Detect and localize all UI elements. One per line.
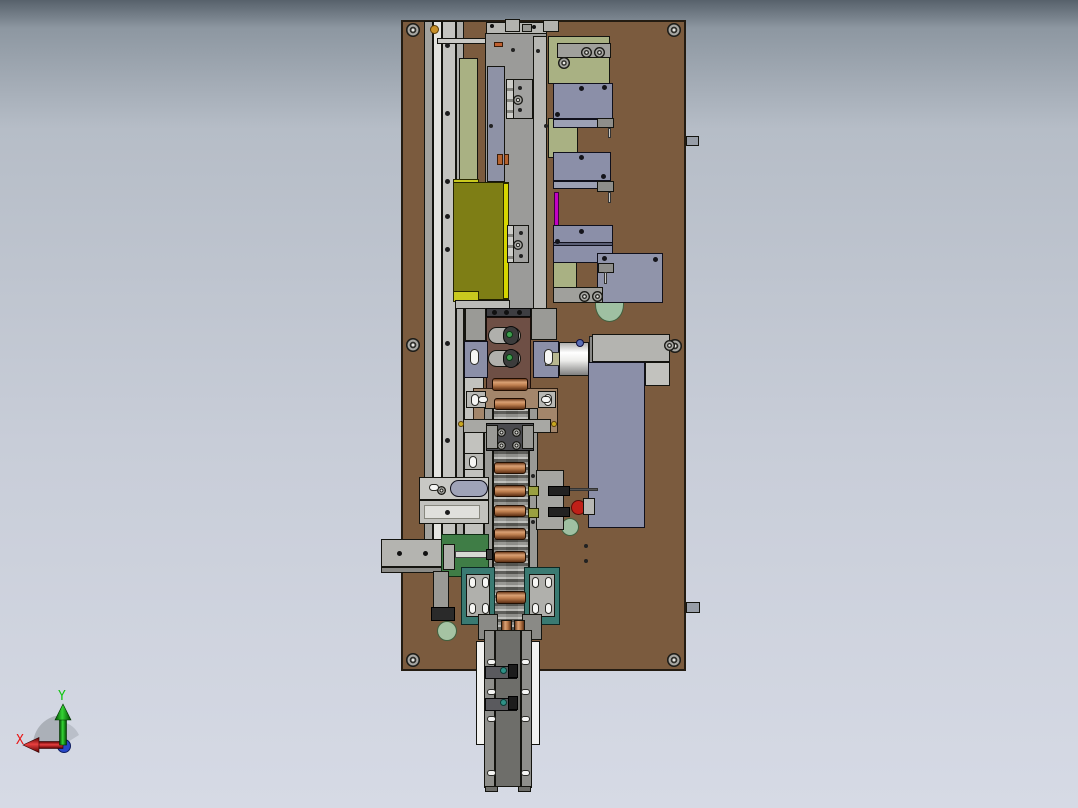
detail-dot [519,231,523,235]
valve-plate[interactable] [536,470,564,530]
mounting-slot [521,659,530,665]
detail-dot [500,667,507,674]
sensor-clamp-2[interactable] [508,696,518,710]
screw [594,47,605,58]
piston-rod[interactable] [455,551,488,558]
cad-viewport[interactable]: Y X [0,0,1078,808]
central-plate-right-strip[interactable] [533,36,547,320]
mounting-slot [532,603,539,614]
knob-cap[interactable] [583,498,595,515]
screw [406,338,420,352]
drive-block[interactable] [588,362,645,528]
detail-dot [579,86,584,91]
top-fitting-1[interactable] [505,19,520,32]
mounting-slot [544,349,553,365]
detail-dot [579,229,584,234]
air-cylinder-cap[interactable] [431,607,455,621]
pale-green-backplate[interactable] [459,58,478,182]
motor-housing[interactable] [592,334,670,362]
linear-rail-white[interactable] [433,21,442,548]
mounting-slot [521,689,530,695]
detail-dot [445,179,450,184]
detail-dot [579,155,584,160]
conveyor-roller[interactable] [494,528,526,540]
sensor-clamp-1[interactable] [508,664,518,678]
screw [512,441,521,450]
actuator-pin-3[interactable] [604,272,607,284]
mounting-slot [521,770,530,776]
detail-dot [584,544,588,548]
detail-dot [602,85,607,90]
screw [558,57,570,69]
track-foot-left[interactable] [485,786,498,792]
screw [667,23,681,37]
screw [667,653,681,667]
detail-dot [518,86,522,90]
mounting-slot [521,716,530,722]
valve-fitting-2[interactable] [528,508,539,518]
reject-arm[interactable] [381,539,444,567]
conveyor-roller[interactable] [496,591,526,604]
screw [581,47,592,58]
detail-dot [445,341,450,346]
magenta-seal[interactable] [554,192,559,226]
detail-dot [445,438,450,443]
h-bar-cylinder[interactable] [450,480,488,497]
plate-tab-right-bottom[interactable] [686,602,700,613]
detail-dot [511,48,515,52]
actuator-pin-2[interactable] [608,192,611,203]
triad-x-label: X [16,733,24,748]
valve-fitting-1[interactable] [528,486,539,496]
detail-dot [532,25,536,29]
detail-dot [492,310,497,315]
detail-dot [445,214,450,219]
detail-dot [489,124,493,128]
screw [592,291,603,302]
coupling-cylinder[interactable] [559,342,589,376]
conveyor-roller[interactable] [494,505,526,517]
conveyor-roller[interactable] [492,378,528,391]
mounting-slot [469,577,476,588]
detail-dot [536,49,540,53]
detail-dot [653,257,658,262]
actuator-foot-1[interactable] [597,118,614,128]
tensioner-wing-right[interactable] [522,425,534,449]
linear-rail-outer[interactable] [424,21,433,544]
mounting-slot [429,484,439,491]
screw [579,291,590,302]
t-fitting-1[interactable] [548,486,570,496]
detail-dot [584,559,588,563]
detail-dot [602,256,607,261]
fixture-wing-right[interactable] [531,308,557,340]
mounting-slot [541,396,551,403]
detail-dot [519,254,523,258]
detail-dot [504,310,509,315]
conveyor-roller[interactable] [494,398,526,410]
detail-dot [518,108,522,112]
detail-dot [555,239,560,244]
orange-strip[interactable] [494,42,503,47]
mounting-slot [470,349,479,365]
actuator-groove-3[interactable] [553,242,613,246]
mounting-slot [545,577,552,588]
mounting-slot [545,603,552,614]
mounting-slot [469,603,476,614]
detail-dot [397,551,402,556]
orange-block-1[interactable] [497,154,503,165]
track-white-left[interactable] [476,641,485,745]
screw [406,23,420,37]
screw [512,428,521,437]
rod-tip[interactable] [486,549,493,560]
screw [406,653,420,667]
screw [497,441,506,450]
h-bar-2-inner[interactable] [424,505,480,519]
detail-dot [544,124,548,128]
conveyor-roller[interactable] [494,485,526,497]
screw [513,240,523,250]
screw [497,428,506,437]
detail-dot [445,510,450,515]
detail-dot [490,24,494,28]
detail-dot [445,111,450,116]
detail-dot [506,331,513,338]
top-fitting-3[interactable] [543,20,559,32]
triad-y-label: Y [58,689,66,704]
mounting-slot [487,659,496,665]
track-foot-right[interactable] [518,786,531,792]
t-fitting-2[interactable] [548,507,570,517]
mounting-slot [487,770,496,776]
conveyor-roller[interactable] [494,462,526,474]
mounting-slot [482,577,489,588]
detail-dot [445,247,450,252]
detail-dot [445,43,450,48]
mounting-slot [487,689,496,695]
actuator-pin-1[interactable] [608,128,611,138]
orange-block-2[interactable] [504,154,509,165]
track-white-right[interactable] [531,641,540,745]
detail-dot [576,339,584,347]
mint-circle[interactable] [437,621,457,641]
mounting-slot [482,603,489,614]
cylinder-cap[interactable] [443,544,455,570]
yellow-block-body[interactable] [453,182,509,300]
gold-screw[interactable] [430,25,439,34]
detail-dot [506,354,513,361]
motor-housing-side[interactable] [645,362,670,386]
fixture-wing-left[interactable] [465,308,486,341]
top-fitting-2[interactable] [522,24,532,32]
detail-dot [555,112,560,117]
detail-dot [517,310,522,315]
detail-dot [531,474,535,478]
actuator-foot-2[interactable] [597,181,614,192]
mounting-slot [532,577,539,588]
conveyor-roller[interactable] [494,551,526,563]
orientation-triad[interactable]: Y X [8,678,108,768]
detail-dot [423,551,428,556]
mounting-slot [469,456,477,468]
plate-tab-right-top[interactable] [686,136,699,146]
detail-dot [551,421,557,427]
screw [664,340,675,351]
screw [513,95,523,105]
mounting-slot [487,716,496,722]
mounting-slot [478,396,488,403]
detail-dot [458,421,464,427]
detail-dot [601,174,606,179]
detail-dot [531,520,535,524]
detail-dot [500,699,507,706]
